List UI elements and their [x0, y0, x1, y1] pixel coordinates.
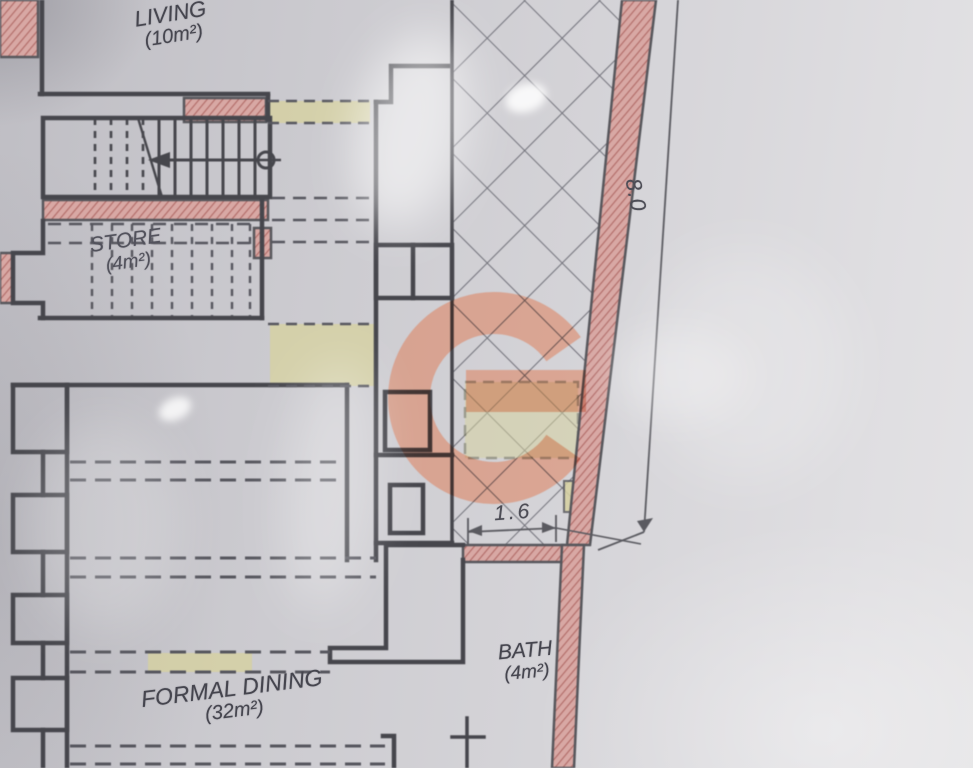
- room-label-bath: BATH (4m²): [476, 636, 575, 687]
- highlight-mid-wall: [270, 324, 374, 386]
- dimension-text-16: 1.6: [493, 498, 559, 526]
- highlight-top-band: [268, 101, 370, 123]
- stair-treads: [159, 118, 255, 197]
- brick-wall-stair: [43, 200, 268, 220]
- dimension-arrow-icon: [637, 518, 653, 532]
- stair-treads-above: [95, 118, 143, 197]
- floorplan-photo: LIVING (10m²) STORE (4m²) FORMAL DINING …: [0, 0, 973, 768]
- brick-wall-bath-top: [463, 545, 564, 562]
- dimension-line-8: [644, 0, 678, 532]
- staircase: [95, 118, 281, 197]
- highlight-beam: [148, 653, 252, 672]
- brick-wall-topleft: [0, 0, 38, 57]
